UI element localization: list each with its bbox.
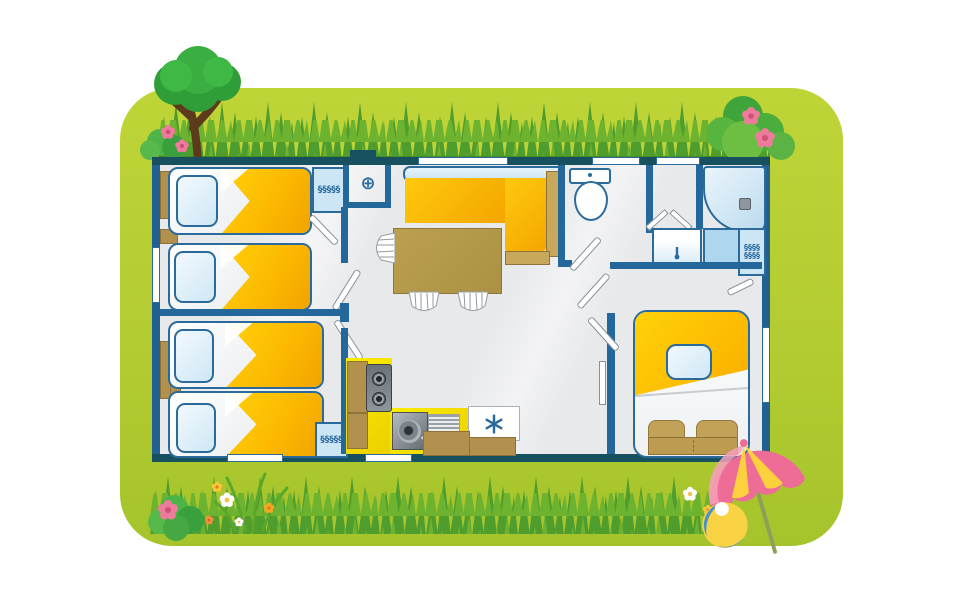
- hanger-icons: §§§§§: [320, 436, 343, 445]
- tree: [138, 44, 256, 162]
- chair: [406, 291, 442, 313]
- umbrella-pole: [758, 491, 775, 551]
- hanger-icons: §§§§§: [318, 186, 341, 195]
- burner: [372, 372, 386, 386]
- hall-wall: [610, 262, 762, 269]
- bed-pillow: [176, 175, 218, 227]
- sliding-door: [599, 361, 606, 405]
- scene: §§§§§ ⊕ §§§§§: [0, 0, 960, 612]
- lawn-flowers-left: [205, 472, 355, 532]
- bush-top-right: [693, 90, 805, 162]
- bush-bottom-left: [146, 488, 212, 542]
- partition-wall-cap: [340, 303, 349, 322]
- hanger-icons: §§§§: [744, 252, 760, 260]
- bed-pillow: [176, 403, 216, 453]
- window: [592, 157, 640, 165]
- corner-sofa-seat: [405, 178, 507, 223]
- shower: [703, 166, 766, 233]
- floor-plan: §§§§§ ⊕ §§§§§: [152, 157, 770, 462]
- kitchen-cabinet: [347, 413, 368, 449]
- door-leaf: [569, 236, 602, 272]
- shower-drain: [739, 198, 751, 210]
- closet-wall: [343, 202, 391, 208]
- window: [656, 157, 700, 165]
- basin-tap-icon: [672, 246, 682, 260]
- hob: [366, 364, 392, 412]
- wc-wall: [558, 165, 565, 263]
- bed-pillow: [174, 329, 214, 383]
- bed-pillow: [174, 251, 216, 303]
- door-leaf: [587, 316, 620, 352]
- utility-symbol-icon: ⊕: [356, 173, 380, 197]
- beach-ball: [698, 496, 752, 550]
- chair: [455, 291, 491, 313]
- fridge: [468, 406, 520, 441]
- cistern-button: [588, 173, 592, 177]
- partition-wall: [341, 207, 348, 263]
- window: [227, 454, 283, 462]
- window: [365, 454, 412, 462]
- window: [152, 247, 160, 303]
- bathroom-wall: [696, 165, 703, 229]
- window: [762, 327, 770, 403]
- kitchen-cabinet: [423, 431, 470, 456]
- closet-wall: [385, 165, 391, 207]
- partition-wall: [160, 309, 342, 316]
- chair: [374, 230, 396, 266]
- snowflake-icon: [484, 414, 504, 434]
- window: [418, 157, 508, 165]
- closet-wall: [343, 165, 349, 207]
- corner-sofa-chaise: [505, 178, 548, 254]
- door-leaf: [726, 278, 754, 297]
- toilet: [574, 181, 608, 221]
- bed-pillow: [666, 344, 712, 380]
- kitchen-cabinet: [469, 437, 516, 456]
- entrance-step: [350, 150, 376, 160]
- sofa-footrest: [505, 251, 550, 265]
- burner: [372, 392, 386, 406]
- washbasin: [652, 228, 702, 266]
- door-leaf: [333, 319, 364, 361]
- dining-table: [393, 228, 502, 294]
- door-leaf: [576, 272, 611, 309]
- tree-foliage: [154, 46, 241, 112]
- kitchen-cabinet: [347, 361, 368, 413]
- door-leaf: [308, 214, 339, 246]
- bathroom-cabinet: [703, 228, 740, 266]
